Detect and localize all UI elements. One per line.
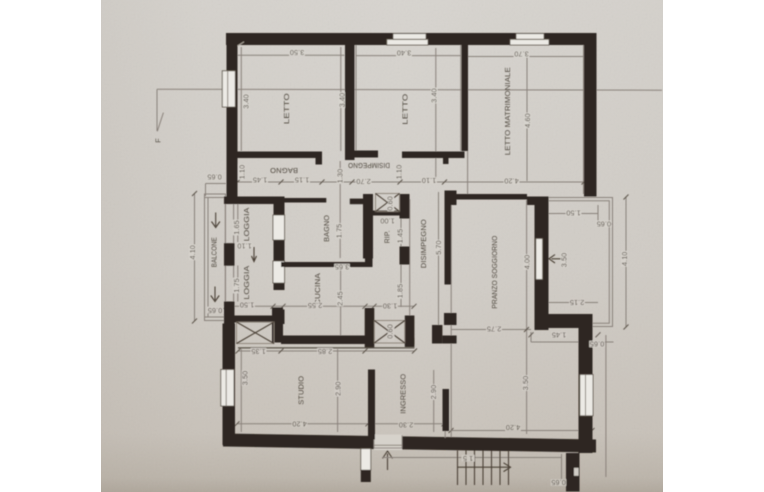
svg-text:RIP.: RIP.	[383, 230, 392, 243]
svg-text:4.20: 4.20	[504, 177, 518, 186]
svg-text:1.50: 1.50	[240, 301, 254, 310]
svg-text:3.40: 3.40	[337, 93, 346, 107]
svg-text:0.60: 0.60	[386, 324, 395, 338]
svg-text:4.00: 4.00	[522, 255, 531, 269]
svg-text:1.35: 1.35	[251, 347, 265, 356]
svg-text:0.65: 0.65	[551, 478, 565, 487]
svg-text:1 5: 1 5	[463, 454, 473, 463]
svg-text:2.70: 2.70	[356, 177, 370, 186]
svg-text:2.90: 2.90	[429, 385, 438, 399]
svg-text:2.15: 2.15	[570, 298, 584, 307]
svg-text:1.75: 1.75	[334, 224, 343, 238]
svg-text:4.10: 4.10	[188, 245, 197, 259]
svg-text:3.40: 3.40	[242, 94, 251, 108]
svg-text:1.45: 1.45	[396, 229, 405, 243]
svg-text:LETTO: LETTO	[401, 93, 410, 124]
svg-text:1.15: 1.15	[295, 175, 309, 184]
svg-text:1.85: 1.85	[395, 284, 404, 298]
svg-text:3.65: 3.65	[335, 263, 349, 272]
svg-text:DISIMPEGNO: DISIMPEGNO	[348, 161, 390, 170]
svg-text:PRANZO SOGGIORNO: PRANZO SOGGIORNO	[490, 235, 499, 308]
svg-text:INGRESSO: INGRESSO	[399, 373, 408, 413]
svg-text:LOGGIA: LOGGIA	[242, 207, 251, 241]
svg-text:1.75: 1.75	[232, 278, 241, 292]
svg-text:5.70: 5.70	[434, 240, 443, 254]
svg-text:LETTO MATRIMONIALE: LETTO MATRIMONIALE	[503, 67, 512, 155]
svg-text:1.45: 1.45	[552, 330, 566, 339]
svg-text:2.85: 2.85	[318, 347, 332, 356]
svg-text:3.40: 3.40	[430, 88, 439, 102]
svg-text:1.10: 1.10	[238, 165, 247, 179]
svg-text:0.60: 0.60	[386, 196, 395, 210]
svg-text:1.50: 1.50	[566, 209, 580, 218]
svg-text:BAGNO: BAGNO	[270, 166, 298, 175]
svg-text:3.40: 3.40	[397, 49, 411, 58]
svg-text:1.00: 1.00	[380, 217, 394, 226]
svg-text:0.65: 0.65	[590, 340, 604, 349]
svg-text:1.10: 1.10	[422, 176, 436, 185]
svg-text:1.45: 1.45	[253, 175, 267, 184]
svg-text:3.50: 3.50	[241, 371, 250, 385]
svg-text:1.30: 1.30	[336, 169, 345, 183]
svg-text:CUCINA: CUCINA	[313, 273, 322, 305]
svg-text:1.65: 1.65	[232, 220, 241, 234]
svg-text:3.70: 3.70	[514, 50, 528, 59]
svg-text:4.20: 4.20	[506, 423, 520, 432]
svg-text:1.30: 1.30	[383, 301, 397, 310]
svg-text:2.55: 2.55	[308, 301, 322, 310]
svg-text:DISIMPEGNO: DISIMPEGNO	[419, 219, 428, 268]
svg-text:3.50: 3.50	[290, 48, 304, 57]
svg-text:2.30: 2.30	[399, 420, 413, 429]
svg-text:4.10: 4.10	[620, 252, 629, 266]
svg-text:1.10: 1.10	[395, 165, 404, 179]
svg-text:LETTO: LETTO	[282, 93, 291, 124]
svg-text:4.60: 4.60	[523, 113, 532, 127]
svg-text:0.65: 0.65	[208, 306, 222, 315]
svg-text:4.20: 4.20	[292, 419, 306, 428]
svg-text:STUDIO: STUDIO	[297, 375, 306, 404]
svg-text:2.45: 2.45	[336, 291, 345, 305]
svg-text:LOGGIA: LOGGIA	[242, 265, 251, 299]
svg-text:3.50: 3.50	[560, 253, 569, 267]
svg-text:2.75: 2.75	[487, 325, 501, 334]
svg-text:2.90: 2.90	[333, 382, 342, 396]
svg-text:3.50: 3.50	[521, 376, 530, 390]
svg-text:1.10: 1.10	[237, 242, 251, 251]
svg-text:0.65: 0.65	[207, 173, 221, 182]
svg-text:F: F	[154, 138, 163, 143]
svg-text:BALCONE: BALCONE	[210, 237, 219, 267]
svg-text:BAGNO: BAGNO	[322, 215, 331, 242]
svg-text:0.65: 0.65	[597, 219, 611, 228]
